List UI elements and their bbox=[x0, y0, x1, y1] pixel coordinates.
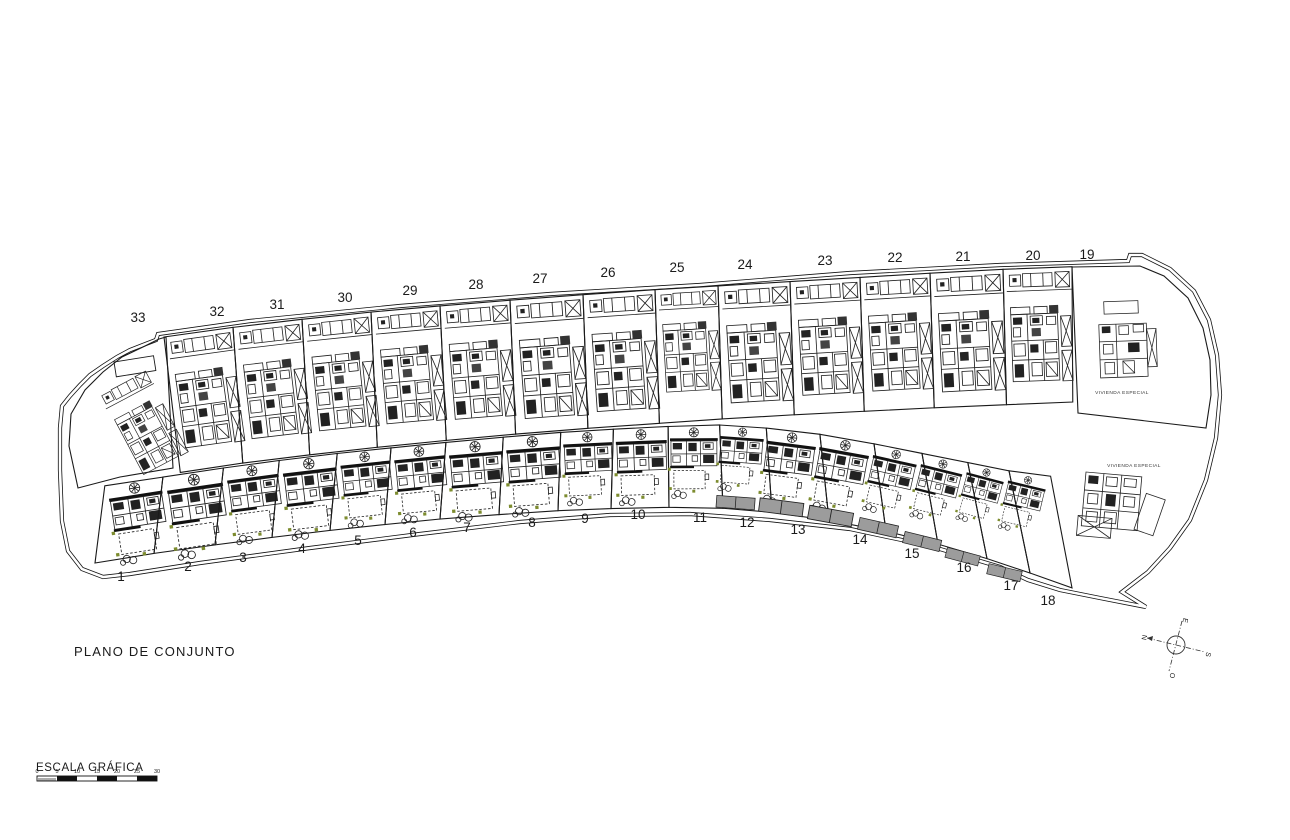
plot-8 bbox=[499, 432, 565, 517]
plot-number-11: 11 bbox=[693, 510, 707, 525]
plot-9 bbox=[558, 429, 615, 511]
plot-2 bbox=[154, 468, 233, 561]
page-title: PLANO DE CONJUNTO bbox=[74, 644, 236, 659]
scale-tick-30: 30 bbox=[154, 769, 160, 775]
plot-number-23: 23 bbox=[817, 253, 832, 268]
plot-7-villa bbox=[446, 439, 508, 522]
plot-number-18: 18 bbox=[1040, 593, 1055, 608]
plot-13-villa bbox=[755, 429, 817, 517]
site-plan-drawing: VIVIENDA ESPECIALVIVIENDA ESPECIAL333231… bbox=[0, 0, 1290, 840]
plot-31-villa bbox=[236, 324, 313, 440]
plot-number-32: 32 bbox=[209, 304, 224, 319]
plot-number-19: 19 bbox=[1079, 247, 1094, 262]
plot-9-villa bbox=[560, 431, 615, 506]
plot-27 bbox=[510, 295, 591, 434]
plot-7 bbox=[440, 437, 508, 522]
plot-25 bbox=[655, 286, 723, 423]
plot-10 bbox=[611, 427, 669, 509]
plot-21 bbox=[930, 269, 1008, 407]
plot-16-villa bbox=[900, 454, 965, 552]
vivienda-especial-label: VIVIENDA ESPECIAL bbox=[1095, 390, 1149, 396]
plot-24-villa bbox=[721, 286, 795, 404]
plot-17 bbox=[942, 463, 1030, 573]
plot-number-3: 3 bbox=[239, 550, 247, 565]
plot-5 bbox=[330, 448, 397, 531]
plot-number-22: 22 bbox=[887, 250, 902, 265]
plot-number-5: 5 bbox=[354, 533, 362, 548]
plot-8-villa bbox=[503, 435, 565, 518]
plot-6 bbox=[385, 442, 451, 524]
plot-11 bbox=[668, 425, 723, 508]
vivienda-especial-lower-villa bbox=[1076, 472, 1167, 543]
site-boundary-outline bbox=[60, 255, 1220, 607]
plot-number-8: 8 bbox=[528, 515, 536, 530]
compass-letter-west: O bbox=[1167, 672, 1175, 679]
plot-number-25: 25 bbox=[669, 260, 684, 275]
plot-26-villa bbox=[586, 295, 661, 413]
plot-28-villa bbox=[443, 305, 518, 421]
plot-3 bbox=[215, 461, 287, 546]
plot-4-villa bbox=[279, 455, 345, 541]
plot-30-villa bbox=[305, 317, 381, 432]
plot-number-28: 28 bbox=[468, 277, 483, 292]
plot-number-6: 6 bbox=[409, 525, 417, 540]
plot-12-villa bbox=[713, 426, 764, 510]
plot-number-30: 30 bbox=[337, 290, 352, 305]
plot-number-9: 9 bbox=[581, 511, 589, 526]
plot-number-14: 14 bbox=[852, 532, 868, 547]
plot-16 bbox=[900, 453, 987, 558]
plot-10-villa bbox=[613, 429, 669, 506]
plot-1-villa bbox=[105, 479, 173, 567]
plot-24 bbox=[718, 282, 796, 419]
plot-11-villa bbox=[668, 428, 718, 499]
plot-28 bbox=[440, 300, 518, 440]
vivienda-especial-lower-area: VIVIENDA ESPECIAL bbox=[1076, 463, 1167, 543]
plot-22-villa bbox=[863, 278, 935, 392]
plot-23 bbox=[790, 277, 866, 414]
plot-number-29: 29 bbox=[402, 283, 417, 298]
plot-19-villa bbox=[1098, 300, 1158, 378]
plot-31 bbox=[233, 319, 314, 463]
plot-number-10: 10 bbox=[630, 507, 645, 522]
plot-number-4: 4 bbox=[298, 541, 306, 556]
plot-20 bbox=[1003, 267, 1075, 405]
plot-number-15: 15 bbox=[904, 546, 919, 561]
plot-number-33: 33 bbox=[130, 310, 145, 325]
plot-number-17: 17 bbox=[1003, 578, 1018, 593]
compass-rose: NESO bbox=[1140, 617, 1212, 679]
plot-number-7: 7 bbox=[463, 520, 471, 535]
plot-26 bbox=[583, 290, 662, 429]
site-boundary-core bbox=[60, 255, 1220, 607]
plot-29-villa bbox=[374, 311, 448, 425]
vivienda-especial-label: VIVIENDA ESPECIAL bbox=[1107, 463, 1161, 469]
plot-33-villa bbox=[99, 370, 190, 476]
plot-21-villa bbox=[933, 274, 1008, 393]
plot-33 bbox=[69, 337, 190, 488]
plot-number-2: 2 bbox=[184, 559, 192, 574]
compass-letter-north: N bbox=[1140, 634, 1148, 640]
compass-letter-south: S bbox=[1203, 651, 1211, 657]
plot-15-villa bbox=[855, 445, 919, 539]
plot-number-20: 20 bbox=[1025, 248, 1040, 263]
plot-number-24: 24 bbox=[737, 257, 753, 272]
plot-number-31: 31 bbox=[269, 297, 284, 312]
plot-number-16: 16 bbox=[956, 560, 971, 575]
plot-27-villa bbox=[513, 300, 590, 420]
plot-30 bbox=[302, 312, 381, 455]
plot-number-13: 13 bbox=[790, 522, 805, 537]
plot-22 bbox=[860, 273, 936, 411]
plot-number-1: 1 bbox=[117, 569, 125, 584]
plot-18 bbox=[984, 471, 1072, 588]
plot-25-villa bbox=[658, 290, 723, 393]
plot-29 bbox=[371, 306, 449, 447]
plot-20-villa bbox=[1006, 271, 1075, 382]
plot-number-26: 26 bbox=[600, 265, 615, 280]
scale-bar-label: ESCALA GRÁFICA bbox=[36, 761, 143, 774]
plot-number-27: 27 bbox=[532, 271, 547, 286]
site-plan-page: VIVIENDA ESPECIALVIVIENDA ESPECIAL333231… bbox=[0, 0, 1290, 840]
plot-number-21: 21 bbox=[955, 249, 970, 264]
plot-number-12: 12 bbox=[739, 515, 754, 530]
plot-23-villa bbox=[793, 282, 865, 396]
